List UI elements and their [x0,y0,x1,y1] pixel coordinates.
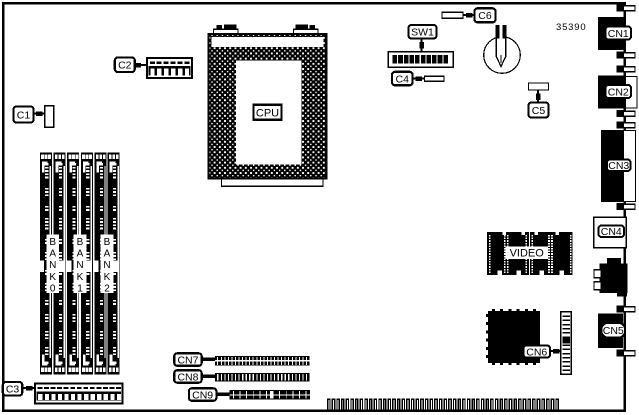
svg-text:N: N [49,260,56,271]
svg-text:CPU: CPU [256,107,279,119]
svg-text:C1: C1 [17,109,31,121]
svg-text:C3: C3 [6,384,20,396]
svg-text:35390: 35390 [556,22,586,33]
svg-text:CN1: CN1 [608,28,629,40]
svg-text:SW1: SW1 [411,27,434,39]
svg-text:C6: C6 [478,10,492,22]
svg-text:C5: C5 [532,105,546,117]
svg-text:B: B [49,237,56,248]
svg-text:CN5: CN5 [603,325,624,337]
svg-text:N: N [76,260,83,271]
svg-text:K: K [77,272,84,283]
svg-text:A: A [49,249,56,260]
svg-text:K: K [49,272,56,283]
svg-text:C4: C4 [396,73,410,85]
svg-text:2: 2 [104,283,110,294]
svg-text:CN3: CN3 [608,160,629,172]
svg-text:CN2: CN2 [608,86,629,98]
svg-text:CN4: CN4 [601,226,622,238]
svg-text:0: 0 [50,283,56,294]
svg-text:CN7: CN7 [177,354,198,366]
svg-text:A: A [77,249,84,260]
svg-text:CN8: CN8 [177,371,198,383]
svg-text:B: B [104,237,111,248]
svg-text:N: N [103,260,110,271]
svg-text:A: A [104,249,111,260]
svg-text:CN6: CN6 [526,346,547,358]
svg-text:1: 1 [77,283,83,294]
svg-text:VIDEO: VIDEO [510,248,545,260]
svg-text:K: K [104,272,111,283]
svg-text:CN9: CN9 [192,389,213,401]
svg-text:B: B [77,237,84,248]
svg-text:C2: C2 [118,60,132,72]
